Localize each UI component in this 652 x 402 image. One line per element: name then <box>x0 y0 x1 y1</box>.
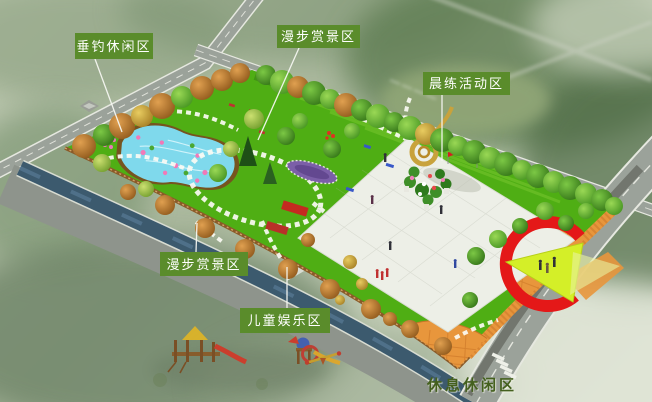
zone-label-rest-leisure: 休息休闲区 <box>427 374 517 395</box>
zone-label-children-play: 儿童娱乐区 <box>240 308 330 333</box>
zone-label-morning-exercise: 晨练活动区 <box>423 72 510 95</box>
scene-canvas <box>0 0 652 402</box>
zone-label-strolling-top: 漫步赏景区 <box>277 25 360 48</box>
park-plan-rendering: 垂钓休闲区 漫步赏景区 晨练活动区 漫步赏景区 儿童娱乐区 休息休闲区 <box>0 0 652 402</box>
zone-label-strolling-bottom: 漫步赏景区 <box>160 252 248 276</box>
zone-label-fishing: 垂钓休闲区 <box>75 33 153 59</box>
